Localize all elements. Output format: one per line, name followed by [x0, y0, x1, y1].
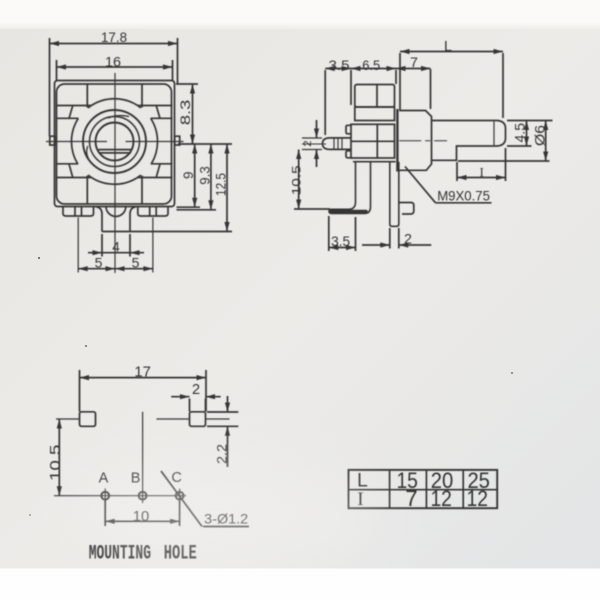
svg-text:7: 7	[410, 54, 418, 70]
svg-text:I: I	[480, 165, 484, 180]
svg-text:8.3: 8.3	[178, 100, 193, 125]
svg-text:10.5: 10.5	[290, 165, 304, 195]
svg-text:17: 17	[134, 364, 151, 380]
svg-text:4: 4	[112, 240, 120, 255]
svg-text:2: 2	[302, 140, 314, 146]
svg-text:3.5: 3.5	[329, 57, 350, 73]
svg-text:16: 16	[105, 54, 121, 70]
svg-text:5: 5	[132, 255, 140, 271]
svg-text:2: 2	[404, 231, 412, 247]
svg-text:17.8: 17.8	[101, 30, 127, 45]
svg-text:7: 7	[405, 486, 417, 511]
svg-text:A: A	[99, 471, 109, 487]
svg-text:12: 12	[430, 486, 452, 511]
svg-text:10.5: 10.5	[47, 445, 64, 482]
svg-text:L: L	[444, 39, 452, 55]
svg-text:9.3: 9.3	[198, 166, 213, 185]
svg-text:9: 9	[181, 171, 196, 179]
svg-text:12.5: 12.5	[214, 173, 229, 196]
svg-text:3.5: 3.5	[331, 234, 350, 249]
svg-text:4.5: 4.5	[513, 123, 528, 143]
svg-text:2: 2	[192, 382, 200, 398]
svg-text:Ø6: Ø6	[533, 125, 548, 146]
svg-text:5: 5	[95, 255, 103, 271]
svg-text:12: 12	[467, 486, 489, 511]
svg-text:6.5: 6.5	[362, 57, 380, 73]
svg-text:M9X0.75: M9X0.75	[437, 188, 490, 204]
